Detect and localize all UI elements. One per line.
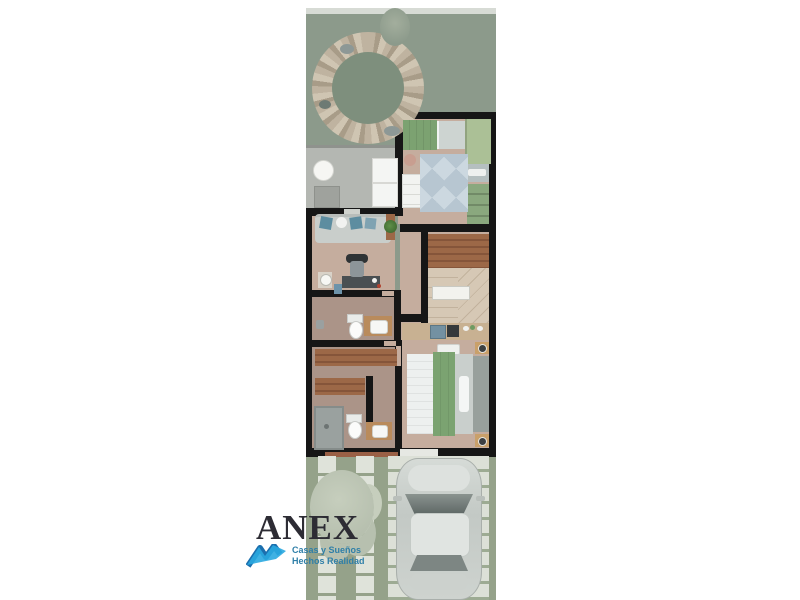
pouf-icon [404, 154, 416, 166]
brand-name: ANEX [256, 510, 359, 545]
bed2-duvet [433, 352, 455, 436]
potted-plant-icon [384, 220, 397, 233]
car-rear-window [410, 555, 468, 571]
car-mirror-icon [393, 496, 402, 501]
dish-icon [463, 326, 469, 331]
car-hood [408, 465, 470, 491]
shower-drain-icon [324, 424, 329, 429]
brand-logo: ANEX Casas y Sueños Hechos Realidad [246, 508, 396, 570]
car-windshield [405, 494, 473, 514]
garden-shrub-icon [380, 8, 410, 46]
sink2 [372, 425, 388, 438]
bed1-pillows [437, 121, 465, 149]
toilet1-bowl [349, 321, 363, 339]
stair-landing [428, 234, 489, 268]
laundry-unit [372, 183, 398, 207]
stove-icon [447, 325, 459, 337]
dish-icon [470, 325, 475, 330]
brand-tagline-2: Hechos Realidad [292, 556, 365, 567]
wall-landing-top [400, 224, 495, 232]
pebble-icon [319, 100, 331, 109]
book-icon [334, 284, 342, 294]
bed1 [403, 120, 437, 150]
bed2-sheet [407, 354, 433, 434]
bed2-pillow [459, 376, 469, 412]
bed2-headboard [473, 356, 489, 432]
brand-mark-icon [246, 544, 288, 569]
diamond-rug [420, 154, 468, 212]
car [396, 458, 482, 600]
sofa-pillow-icon [336, 217, 347, 228]
shower [314, 406, 344, 450]
stone-circle-center [332, 52, 404, 124]
dresser1 [402, 174, 422, 208]
car-roof [410, 513, 470, 557]
wall-left [306, 208, 312, 456]
wardrobe1 [465, 119, 491, 164]
patio-table [313, 160, 334, 181]
waste-bin-icon [316, 320, 324, 329]
wall-closet-stub [366, 376, 373, 422]
sofa-pillow-icon [364, 217, 376, 229]
car-mirror-icon [476, 496, 485, 501]
sink1 [370, 320, 388, 334]
wardrobe1-shelf-item [468, 169, 486, 176]
lamp-icon [478, 437, 487, 446]
kitchen-sink [430, 325, 446, 339]
floorplan-render: ANEX Casas y Sueños Hechos Realidad [0, 0, 800, 600]
entry-door-gap [400, 449, 438, 456]
door-gap-bath1 [382, 291, 394, 296]
desk-item-icon [372, 278, 377, 283]
car-trunk [411, 574, 467, 590]
dish-icon [477, 326, 483, 331]
lamp-icon [478, 344, 487, 353]
toilet2-bowl [348, 421, 362, 439]
sofa-pillow-icon [349, 216, 363, 230]
pebble-icon [340, 44, 354, 54]
office-chair-seat [350, 261, 364, 277]
closet-wardrobe-row [315, 378, 365, 395]
desk-item-icon [377, 284, 381, 288]
pebble-icon [384, 126, 400, 136]
brand-tagline-1: Casas y Sueños [292, 545, 361, 556]
closet-wardrobe-row [315, 349, 397, 366]
lamp-icon [320, 274, 332, 286]
wardrobe1-drawers [467, 184, 489, 224]
laundry-unit [372, 158, 398, 183]
stair-rail [432, 286, 470, 300]
sofa-pillow-icon [319, 216, 333, 230]
patio-mat [314, 186, 340, 208]
door-gap-closet [384, 341, 396, 346]
